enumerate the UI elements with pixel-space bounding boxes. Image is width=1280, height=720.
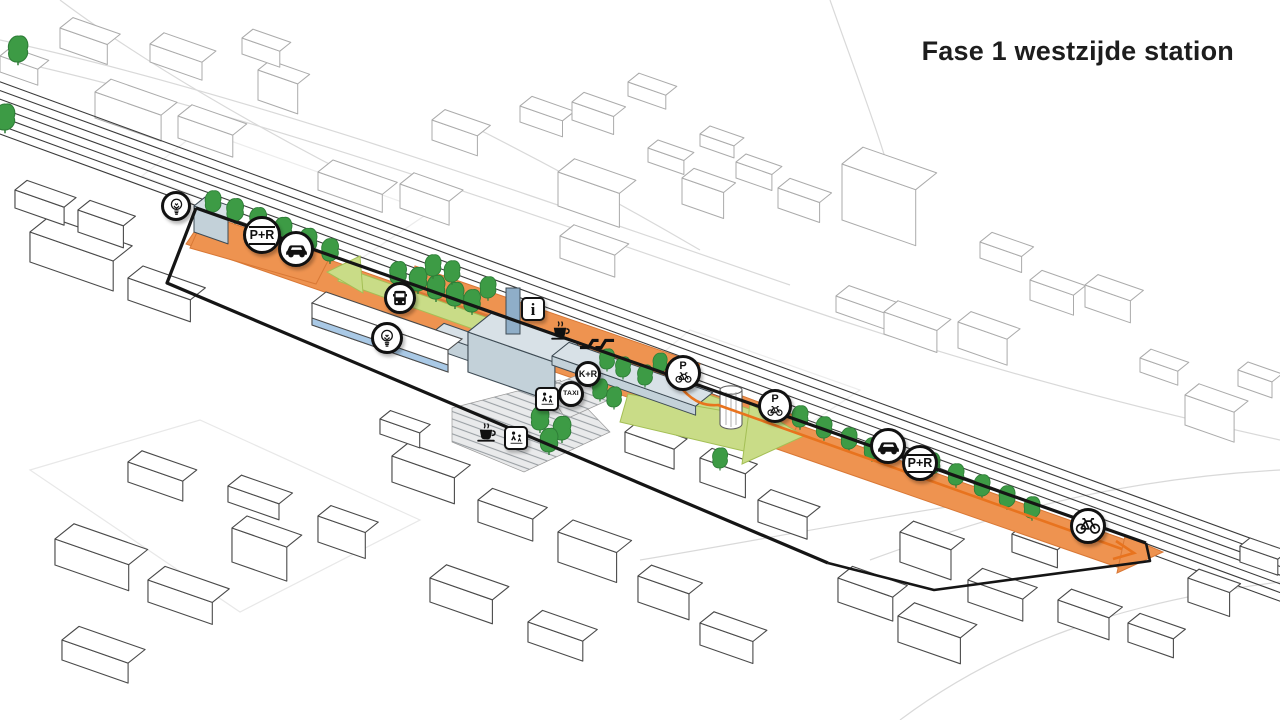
info-label: i xyxy=(531,301,536,318)
lightbulb-icon xyxy=(371,322,403,354)
park-and-ride-label: P+R xyxy=(249,226,276,245)
surrounding-buildings xyxy=(15,180,1280,683)
bike-parking-label: P xyxy=(679,362,686,372)
bike-parking-icon: P xyxy=(758,389,792,423)
info-icon: i xyxy=(521,297,545,321)
ns-rail-logo-icon xyxy=(579,334,615,354)
park-and-ride-icon: P+R xyxy=(902,445,938,481)
park-and-ride-label: P+R xyxy=(907,454,934,473)
taxi-icon: TAXI xyxy=(558,381,584,407)
car-icon xyxy=(278,231,314,267)
pedestrians-icon xyxy=(504,426,528,450)
elevator-tower xyxy=(506,288,520,334)
bus-icon xyxy=(384,282,416,314)
kiss-and-ride-label: K+R xyxy=(579,370,597,379)
coffee-icon xyxy=(474,420,498,444)
bike-parking-icon: P xyxy=(665,355,701,391)
station-area-plan: P+R i K+R TAXI xyxy=(0,0,1280,720)
pedestrians-icon xyxy=(535,387,559,411)
bike-parking-label: P xyxy=(771,395,778,405)
bicycle-icon xyxy=(1070,508,1106,544)
lightbulb-icon xyxy=(161,191,191,221)
car-icon xyxy=(870,428,906,464)
park-and-ride-icon: P+R xyxy=(243,216,281,254)
page-title: Fase 1 westzijde station xyxy=(922,36,1234,67)
taxi-label: TAXI xyxy=(563,391,579,398)
plan-map-drawing xyxy=(0,0,1280,720)
coffee-icon xyxy=(548,318,572,342)
